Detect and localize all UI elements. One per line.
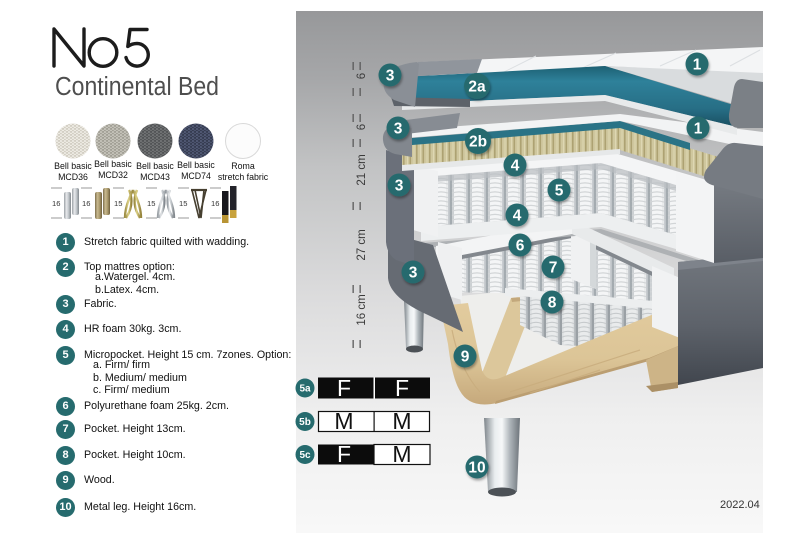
svg-text:F: F — [337, 375, 351, 401]
svg-text:8: 8 — [548, 295, 557, 312]
svg-text:4: 4 — [513, 208, 522, 225]
svg-text:2b: 2b — [469, 134, 487, 151]
svg-text:5c: 5c — [299, 450, 311, 461]
svg-text:4: 4 — [511, 158, 520, 175]
svg-text:3: 3 — [386, 68, 395, 85]
svg-text:7: 7 — [549, 260, 558, 277]
svg-text:5b: 5b — [299, 417, 311, 428]
svg-text:5: 5 — [555, 183, 564, 200]
svg-text:5a: 5a — [299, 384, 311, 395]
svg-text:6: 6 — [356, 124, 368, 130]
svg-text:M: M — [392, 441, 411, 467]
svg-text:21 cm: 21 cm — [356, 154, 368, 185]
svg-text:6: 6 — [356, 73, 368, 79]
svg-text:10: 10 — [468, 460, 485, 477]
svg-text:F: F — [337, 441, 351, 467]
svg-text:1: 1 — [694, 121, 703, 138]
svg-text:3: 3 — [394, 121, 403, 138]
svg-text:2a: 2a — [468, 79, 486, 96]
svg-text:2022.04: 2022.04 — [720, 499, 760, 511]
svg-text:6: 6 — [516, 238, 525, 255]
svg-text:1: 1 — [693, 57, 702, 74]
svg-text:3: 3 — [395, 178, 404, 195]
svg-text:M: M — [392, 408, 411, 434]
svg-text:27 cm: 27 cm — [356, 229, 368, 260]
svg-text:F: F — [395, 375, 409, 401]
svg-text:M: M — [334, 408, 353, 434]
svg-text:16 cm: 16 cm — [356, 294, 368, 325]
svg-text:3: 3 — [409, 265, 418, 282]
svg-text:9: 9 — [461, 349, 470, 366]
